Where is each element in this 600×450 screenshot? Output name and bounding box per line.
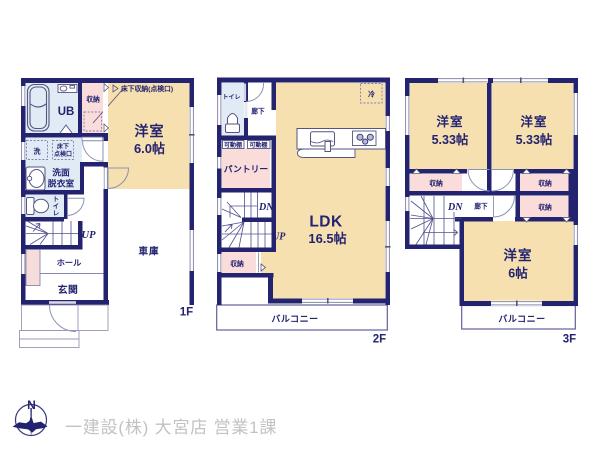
svg-text:収納: 収納 [429,179,443,188]
svg-text:6.0帖: 6.0帖 [134,141,165,156]
svg-text:2F: 2F [373,334,386,346]
svg-text:洋室: 洋室 [520,114,547,129]
svg-text:16.5帖: 16.5帖 [308,231,346,246]
svg-text:ト: ト [53,195,59,203]
svg-text:洋室: 洋室 [436,114,463,129]
svg-text:洋室: 洋室 [504,247,533,263]
svg-text:ホール: ホール [57,259,82,268]
svg-text:収納: 収納 [86,95,100,104]
svg-text:5.33帖: 5.33帖 [432,132,469,147]
svg-text:LDK: LDK [309,214,343,231]
svg-text:バルコニー: バルコニー [271,314,318,324]
svg-text:洗面: 洗面 [52,167,70,178]
svg-text:洋室: 洋室 [135,123,165,139]
svg-text:パントリー: パントリー [224,163,269,174]
svg-text:点検口: 点検口 [54,150,72,158]
svg-text:可動棚: 可動棚 [249,141,267,149]
svg-text:収納: 収納 [538,179,552,188]
svg-text:車庫: 車庫 [138,246,159,258]
svg-text:3F: 3F [563,334,576,346]
svg-text:可動棚: 可動棚 [224,141,242,149]
svg-text:DN: DN [258,202,274,213]
svg-text:DN: DN [447,202,463,213]
svg-text:脱衣室: 脱衣室 [48,178,75,189]
svg-text:UP: UP [272,232,286,243]
svg-text:収納: 収納 [230,259,244,268]
svg-text:玄関: 玄関 [58,283,79,296]
svg-text:収納: 収納 [538,203,552,212]
svg-text:バルコニー: バルコニー [498,314,545,324]
svg-text:レ: レ [53,210,59,217]
svg-text:床下: 床下 [57,143,69,151]
svg-text:床下収納(点検口): 床下収納(点検口) [121,84,173,93]
svg-text:6帖: 6帖 [508,266,528,281]
svg-text:UB: UB [58,106,75,118]
svg-text:UP: UP [82,230,97,241]
svg-text:冷: 冷 [368,90,375,99]
svg-text:1F: 1F [180,307,193,319]
svg-text:洗: 洗 [34,147,41,156]
svg-text:イ: イ [53,202,59,210]
svg-text:5.33帖: 5.33帖 [516,132,553,147]
svg-text:一建設(株) 大宮店 営業1課: 一建設(株) 大宮店 営業1課 [65,418,277,437]
svg-text:廊下: 廊下 [251,107,265,116]
svg-text:廊下: 廊下 [474,202,488,211]
svg-text:トイレ: トイレ [222,94,240,101]
